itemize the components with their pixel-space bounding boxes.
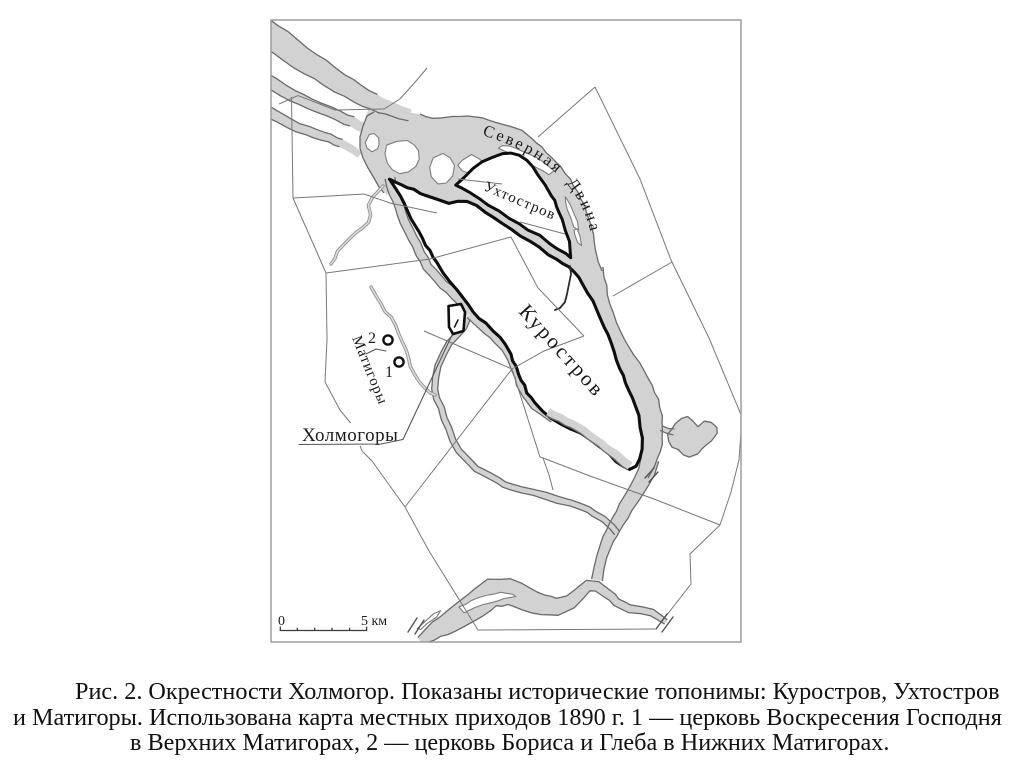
svg-text:1: 1 bbox=[385, 364, 393, 381]
svg-text:5 км: 5 км bbox=[361, 614, 387, 629]
svg-text:0: 0 bbox=[278, 614, 285, 629]
svg-text:2: 2 bbox=[368, 330, 376, 347]
